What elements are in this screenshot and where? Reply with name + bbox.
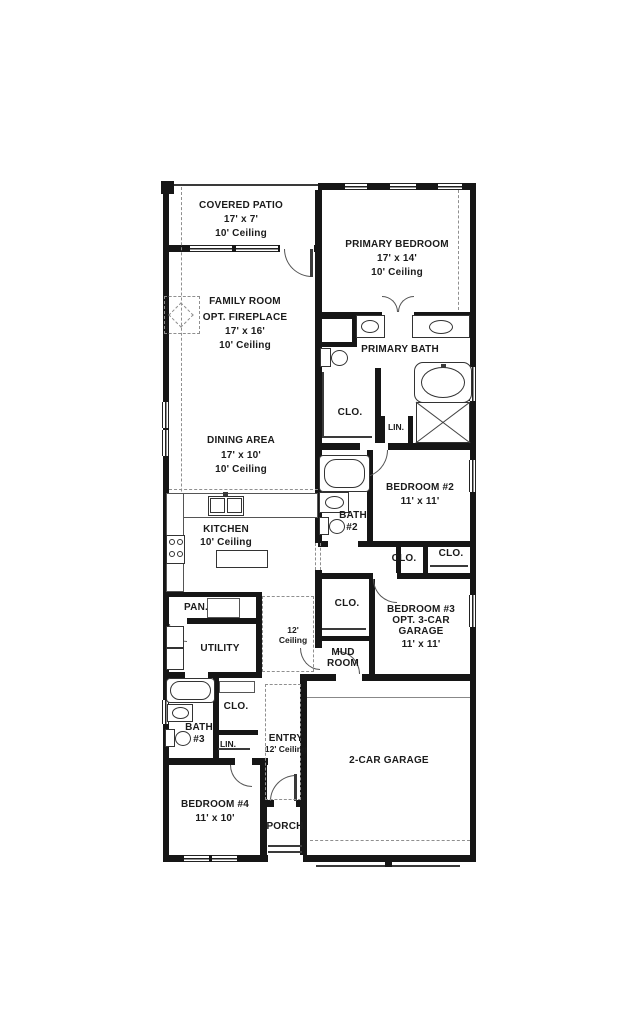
room-label-mud-room-line2: ROOM [327, 658, 359, 669]
toilet-bowl [329, 519, 345, 534]
kitchen-island [216, 550, 268, 568]
wall [300, 674, 336, 681]
toilet-tank [165, 729, 175, 747]
sink-basin [361, 320, 379, 333]
room-label-primary-linen: LIN. [388, 423, 404, 432]
wall [318, 573, 476, 579]
room-label-mud-room-line1: MUD [331, 647, 354, 658]
door-arc-primary-left [382, 296, 398, 312]
window [190, 245, 232, 252]
room-label-covered-patio: COVERED PATIO [199, 200, 283, 211]
closet-shelf [322, 436, 372, 438]
sink-bowl [210, 498, 225, 513]
window [390, 183, 416, 190]
sink-basin [325, 496, 344, 509]
wall [187, 618, 262, 624]
room-label-linen-2: LIN. [220, 740, 236, 749]
wall [296, 800, 307, 807]
sink-faucet [223, 492, 228, 496]
shower [416, 402, 470, 443]
room-label-porch: PORCH [266, 821, 303, 832]
room-label-primary-closet: CLO. [338, 407, 363, 418]
cabinet-dash-line [169, 489, 318, 490]
window [469, 595, 476, 627]
toilet-tank [319, 517, 329, 535]
room-option-family-room: OPT. FIREPLACE [203, 312, 287, 323]
room-label-bedroom-3: BEDROOM #3 [387, 604, 455, 615]
room-ceiling-kitchen: 10' Ceiling [200, 537, 252, 548]
room-dims-primary-bedroom: 17' x 14' [377, 253, 417, 264]
wall [408, 416, 413, 443]
patio-edge-line [166, 184, 318, 186]
room-dims-dining-area: 17' x 10' [221, 450, 261, 461]
toilet-tank [320, 348, 331, 367]
door-arc-bedroom3 [373, 579, 397, 603]
room-label-utility: UTILITY [200, 643, 239, 654]
wall [163, 592, 262, 597]
patio-post [161, 181, 174, 194]
utility-appliance [166, 648, 184, 670]
porch-step [268, 851, 302, 853]
wall [163, 758, 235, 765]
wall [318, 443, 360, 450]
sink-basin [172, 707, 189, 719]
room-ceiling-entry: 12' Ceiling [265, 745, 307, 754]
hall-ceiling-line2: Ceiling [279, 636, 307, 645]
wall [318, 342, 357, 347]
burner [177, 539, 183, 545]
wall [262, 800, 274, 807]
bathtub-basin [170, 681, 211, 700]
wall [362, 674, 476, 681]
closet-shelf [219, 681, 255, 693]
porch-step [268, 845, 302, 847]
room-label-hall-closet: CLO. [224, 701, 249, 712]
garage-door-post [385, 862, 392, 867]
toilet-bowl [331, 350, 348, 366]
door-arc-bedroom4 [230, 765, 252, 787]
floor-plan: COVERED PATIO 17' x 7' 10' Ceiling PRIMA… [0, 0, 622, 1024]
tub-faucet [441, 364, 446, 368]
burner [169, 539, 175, 545]
window [345, 183, 367, 190]
room-dims-family-room: 17' x 16' [225, 326, 265, 337]
room-dims-bedroom-2: 11' x 11' [401, 496, 440, 507]
wall [358, 541, 476, 547]
room-label-primary-bedroom: PRIMARY BEDROOM [345, 239, 449, 250]
room-dims-covered-patio: 17' x 7' [224, 214, 258, 225]
room-ceiling-family-room: 10' Ceiling [219, 340, 271, 351]
closet-shelf [322, 628, 366, 630]
room-label-pantry: PAN. [184, 602, 208, 613]
sink-basin [429, 320, 453, 334]
room-dims-bedroom-4: 11' x 10' [195, 813, 234, 824]
room-label-garage: 2-CAR GARAGE [349, 755, 429, 766]
utility-appliance [166, 626, 184, 648]
room-label-family-room: FAMILY ROOM [209, 296, 281, 307]
wall [318, 636, 375, 641]
room-label-bedroom-3-closet: CLO. [335, 598, 360, 609]
window [184, 855, 209, 862]
door-arc-patio [284, 249, 312, 277]
window [438, 183, 462, 190]
garage-line [307, 697, 470, 698]
burner [169, 551, 175, 557]
wall [388, 443, 476, 450]
toilet-bowl [175, 731, 191, 746]
room-label-primary-bath: PRIMARY BATH [361, 344, 439, 355]
window [162, 430, 169, 456]
room-option1-bedroom-3: OPT. 3-CAR [392, 615, 450, 626]
room-label-bath-2: BATH [339, 510, 367, 521]
door-arc-primary-right [398, 296, 414, 312]
room-ceiling-primary-bedroom: 10' Ceiling [371, 267, 423, 278]
room-label-dining-area: DINING AREA [207, 435, 275, 446]
window [162, 402, 169, 428]
hall-ceiling-line1: 12' [287, 626, 298, 635]
ceiling-break-line [458, 190, 459, 310]
bathtub-basin [421, 367, 465, 398]
room-label-bath-3: BATH [185, 722, 213, 733]
room-ceiling-dining-area: 10' Ceiling [215, 464, 267, 475]
window [469, 460, 476, 492]
room-label-entry: ENTRY [269, 733, 304, 744]
wall [470, 183, 476, 862]
room-label-closet-2: CLO. [439, 548, 464, 559]
opening-dash [320, 543, 321, 570]
wall [380, 416, 385, 443]
room-number-bath-3: #3 [193, 734, 205, 745]
wall [369, 578, 375, 674]
window [212, 855, 237, 862]
closet-shelf [322, 372, 324, 436]
bathtub-basin [324, 459, 365, 488]
sink-bowl [227, 498, 242, 513]
room-label-bedroom-2: BEDROOM #2 [386, 482, 454, 493]
door-leaf-patio [310, 249, 313, 277]
room-label-closet-1: CLO. [392, 553, 417, 564]
wall [423, 547, 428, 573]
room-number-bath-2: #2 [346, 522, 358, 533]
wall [303, 855, 476, 862]
room-label-kitchen: KITCHEN [203, 524, 249, 535]
burner [177, 551, 183, 557]
window [236, 245, 278, 252]
room-ceiling-covered-patio: 10' Ceiling [215, 228, 267, 239]
room-option2-bedroom-3: GARAGE [398, 626, 443, 637]
room-dims-bedroom-3: 11' x 11' [402, 639, 441, 650]
opening-dash [315, 543, 316, 570]
room-label-bedroom-4: BEDROOM #4 [181, 799, 249, 810]
wall [213, 730, 258, 735]
garage-dash-line [310, 840, 470, 841]
closet-shelf [430, 565, 468, 567]
pantry-shelf [207, 598, 240, 618]
